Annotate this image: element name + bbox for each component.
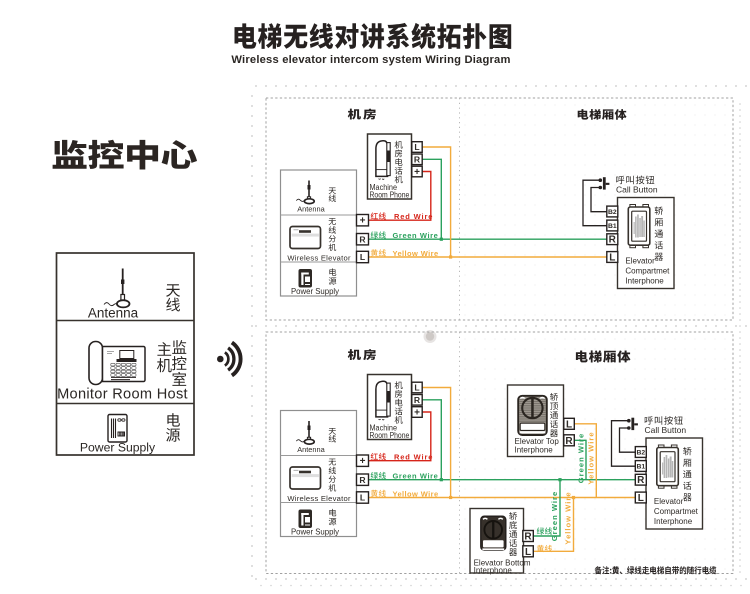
svg-text:Green Wire: Green Wire — [393, 231, 439, 240]
svg-text:B2: B2 — [608, 209, 617, 216]
svg-text:Call Button: Call Button — [645, 425, 687, 435]
svg-text:Yellow Wire: Yellow Wire — [393, 249, 439, 258]
svg-text:Wireless Elevator: Wireless Elevator — [287, 494, 351, 503]
svg-text:Interphone: Interphone — [515, 445, 554, 454]
svg-text:B1: B1 — [608, 223, 617, 230]
svg-text:Monitor Room Host: Monitor Room Host — [57, 386, 188, 402]
svg-text:L: L — [525, 547, 531, 558]
svg-text:Call Button: Call Button — [616, 185, 658, 195]
svg-text:Wireless elevator intercom sys: Wireless elevator intercom system Wiring… — [231, 54, 510, 66]
svg-text:R: R — [637, 475, 645, 486]
svg-text:Power Supply: Power Supply — [291, 287, 339, 296]
svg-text:Compartmet: Compartmet — [625, 267, 670, 276]
svg-text:Compartmet: Compartmet — [654, 507, 699, 516]
svg-text:L: L — [609, 253, 615, 264]
svg-text:R: R — [609, 235, 617, 246]
svg-text:+: + — [360, 456, 366, 467]
svg-text:Antenna: Antenna — [88, 306, 139, 321]
svg-text:Yellow Wire: Yellow Wire — [586, 431, 595, 484]
svg-text:L: L — [566, 419, 572, 430]
svg-text:Interphone: Interphone — [474, 566, 513, 575]
svg-text:R: R — [414, 395, 421, 405]
svg-text:Red Wire: Red Wire — [394, 212, 433, 221]
svg-text:Green Wire: Green Wire — [550, 491, 559, 541]
svg-text:Yellow Wire: Yellow Wire — [393, 489, 439, 498]
svg-text:+: + — [414, 407, 420, 418]
svg-text:R: R — [414, 154, 421, 164]
svg-text:Power Supply: Power Supply — [291, 527, 339, 536]
svg-text:B1: B1 — [636, 464, 645, 471]
svg-text:Room Phone: Room Phone — [370, 431, 410, 440]
svg-text:Interphone: Interphone — [625, 276, 664, 285]
svg-text:Power Supply: Power Supply — [80, 441, 156, 455]
svg-text:Antenna: Antenna — [297, 204, 325, 213]
svg-text:L: L — [360, 252, 365, 262]
svg-text:R: R — [359, 234, 366, 244]
svg-text:Interphone: Interphone — [654, 517, 693, 526]
svg-text:R: R — [565, 436, 573, 447]
svg-text:Room Phone: Room Phone — [370, 190, 410, 199]
svg-text:Antenna: Antenna — [297, 445, 325, 454]
svg-text:L: L — [414, 142, 419, 152]
svg-text:Wireless Elevator: Wireless Elevator — [287, 253, 351, 262]
svg-text:R: R — [359, 475, 366, 485]
svg-text:Elevator: Elevator — [625, 257, 655, 266]
svg-text:Elevator: Elevator — [654, 497, 684, 506]
svg-text:Red Wire: Red Wire — [394, 453, 433, 462]
svg-text:L: L — [360, 493, 365, 503]
svg-text:Yellow Wire: Yellow Wire — [563, 491, 572, 544]
svg-text:B2: B2 — [636, 450, 645, 457]
svg-text:+: + — [360, 216, 366, 227]
svg-text:Green Wire: Green Wire — [393, 472, 439, 481]
svg-text:L: L — [638, 493, 644, 504]
svg-text:Green Wire: Green Wire — [577, 433, 586, 483]
svg-text:L: L — [414, 383, 419, 393]
svg-text:R: R — [524, 532, 532, 543]
svg-text:+: + — [414, 167, 420, 178]
